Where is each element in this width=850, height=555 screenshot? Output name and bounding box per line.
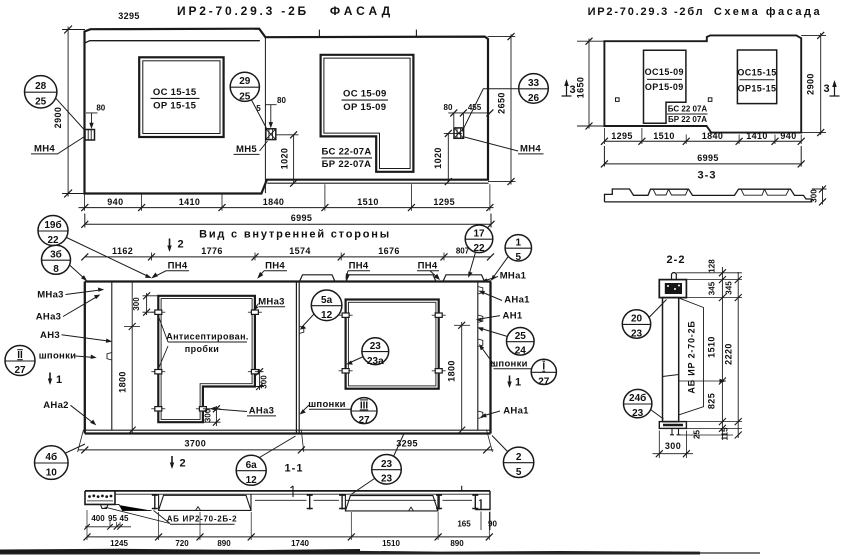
svg-text:25: 25 [693, 430, 702, 439]
svg-text:1020: 1020 [433, 147, 443, 169]
svg-text:27: 27 [358, 415, 370, 426]
svg-text:23: 23 [370, 341, 382, 352]
svg-text:890: 890 [217, 539, 231, 548]
svg-text:3: 3 [823, 83, 830, 95]
svg-text:2900: 2900 [53, 107, 63, 129]
svg-text:890: 890 [450, 539, 464, 548]
svg-text:1295: 1295 [433, 197, 455, 207]
svg-text:12: 12 [321, 310, 333, 321]
svg-text:МНа3: МНа3 [258, 297, 285, 308]
svg-text:23: 23 [381, 474, 393, 485]
svg-text:III: III [360, 400, 369, 411]
svg-text:АН3: АН3 [40, 330, 60, 341]
svg-text:БР 22 07А: БР 22 07А [668, 115, 707, 124]
svg-text:шпонки: шпонки [490, 358, 528, 369]
svg-text:8: 8 [53, 264, 59, 275]
svg-text:1510: 1510 [382, 539, 400, 548]
svg-text:29: 29 [239, 76, 251, 87]
svg-text:24: 24 [515, 346, 527, 357]
svg-text:300: 300 [665, 441, 681, 451]
svg-text:28: 28 [35, 81, 47, 92]
svg-text:22: 22 [47, 235, 59, 246]
svg-text:19б: 19б [44, 219, 61, 231]
svg-text:1020: 1020 [280, 148, 290, 170]
svg-text:ОС 15-15: ОС 15-15 [153, 87, 197, 98]
svg-text:ПН4: ПН4 [349, 260, 369, 271]
svg-text:25: 25 [515, 331, 527, 342]
svg-text:5: 5 [516, 467, 522, 478]
svg-text:1776: 1776 [201, 246, 223, 256]
svg-text:17: 17 [473, 228, 485, 239]
svg-text:АНа1: АНа1 [504, 295, 530, 306]
svg-text:пробки: пробки [185, 344, 219, 354]
svg-text:345: 345 [708, 281, 717, 295]
svg-text:1510: 1510 [653, 131, 675, 141]
svg-text:1-1: 1-1 [285, 463, 304, 475]
svg-text:2650: 2650 [497, 92, 507, 114]
svg-text:БР 22-07А: БР 22-07А [322, 159, 372, 170]
svg-text:АН1: АН1 [503, 310, 523, 321]
svg-text:10: 10 [46, 468, 58, 479]
svg-text:2-2: 2-2 [667, 254, 686, 266]
svg-text:1676: 1676 [378, 246, 400, 256]
svg-text:720: 720 [175, 539, 189, 548]
svg-text:ПН4: ПН4 [265, 260, 285, 271]
svg-text:МНа3: МНа3 [37, 290, 64, 301]
svg-text:ОС15-09: ОС15-09 [645, 67, 684, 77]
svg-text:1840: 1840 [263, 197, 285, 207]
svg-text:23: 23 [632, 408, 644, 419]
svg-text:128: 128 [708, 259, 717, 273]
svg-text:5: 5 [516, 252, 522, 263]
svg-text:АБ ИР2-70-2Б-2: АБ ИР2-70-2Б-2 [167, 515, 238, 524]
svg-text:ОР15-09: ОР15-09 [645, 82, 684, 92]
svg-text:1162: 1162 [112, 246, 133, 256]
svg-text:АБ ИР 2-70-2Б: АБ ИР 2-70-2Б [687, 320, 697, 393]
svg-text:33: 33 [528, 78, 540, 89]
svg-text:4б: 4б [45, 451, 57, 463]
svg-text:1574: 1574 [289, 246, 311, 256]
svg-text:825: 825 [707, 393, 717, 409]
svg-text:1800: 1800 [447, 360, 457, 382]
svg-text:2: 2 [180, 458, 187, 470]
svg-text:ОР 15-15: ОР 15-15 [153, 101, 196, 112]
svg-text:2220: 2220 [724, 343, 734, 365]
svg-text:1410: 1410 [179, 197, 201, 207]
svg-text:300: 300 [260, 375, 269, 389]
svg-text:27: 27 [538, 376, 550, 387]
svg-text:1410: 1410 [746, 131, 768, 141]
svg-text:3-3: 3-3 [698, 170, 717, 182]
svg-text:22: 22 [473, 243, 485, 254]
svg-text:3б: 3б [50, 248, 62, 260]
svg-text:3700: 3700 [184, 439, 206, 449]
svg-text:1800: 1800 [118, 371, 128, 393]
svg-text:5а: 5а [321, 295, 333, 306]
svg-text:АНа1: АНа1 [503, 406, 529, 417]
svg-text:ОР15-15: ОР15-15 [738, 84, 777, 94]
svg-text:2900: 2900 [806, 73, 816, 95]
svg-text:23а: 23а [367, 356, 384, 367]
svg-text:МНа1: МНа1 [500, 271, 527, 282]
svg-text:6995: 6995 [291, 213, 313, 223]
svg-text:ПН4: ПН4 [168, 260, 188, 271]
svg-text:25: 25 [239, 91, 251, 102]
svg-text:80: 80 [444, 103, 453, 112]
svg-text:23: 23 [631, 328, 643, 339]
svg-text:24б: 24б [629, 392, 646, 404]
svg-text:3295: 3295 [118, 11, 140, 21]
svg-text:БС 22-07А: БС 22-07А [321, 147, 371, 158]
svg-text:ОС15-15: ОС15-15 [737, 67, 776, 77]
svg-text:МН4: МН4 [34, 144, 55, 155]
svg-text:25: 25 [35, 96, 47, 107]
svg-text:1: 1 [516, 237, 522, 248]
svg-text:1295: 1295 [611, 131, 633, 141]
svg-text:80: 80 [96, 104, 105, 113]
svg-text:6а: 6а [246, 460, 258, 471]
svg-text:300: 300 [204, 408, 213, 422]
svg-text:20: 20 [631, 314, 643, 325]
svg-text:ПН4: ПН4 [418, 260, 438, 271]
svg-text:ОР 15-09: ОР 15-09 [343, 102, 386, 113]
svg-text:1: 1 [515, 377, 522, 389]
svg-text:МН5: МН5 [236, 144, 257, 155]
svg-text:940: 940 [107, 197, 123, 207]
svg-text:300: 300 [132, 297, 141, 311]
svg-text:2: 2 [516, 452, 522, 463]
svg-text:80: 80 [277, 96, 286, 105]
svg-text:400: 400 [91, 514, 105, 523]
svg-text:95: 95 [108, 514, 117, 523]
svg-text:АНа3: АНа3 [36, 312, 62, 323]
svg-text:шпонки: шпонки [39, 350, 77, 361]
svg-text:345: 345 [725, 281, 734, 295]
svg-text:МН4: МН4 [520, 144, 541, 155]
svg-text:ИР2-70.29.3 -2бл: ИР2-70.29.3 -2бл [588, 6, 705, 18]
svg-text:2: 2 [178, 239, 185, 251]
svg-text:6995: 6995 [697, 153, 719, 163]
svg-text:1: 1 [56, 374, 63, 386]
svg-text:5: 5 [256, 104, 261, 113]
svg-text:1245: 1245 [110, 539, 128, 548]
svg-text:23: 23 [381, 459, 393, 470]
svg-text:Схема фасада: Схема фасада [714, 6, 822, 18]
svg-text:АНа3: АНа3 [249, 406, 275, 417]
svg-text:1510: 1510 [357, 197, 379, 207]
svg-text:шпонки: шпонки [308, 399, 346, 410]
svg-text:Антисептирован.: Антисептирован. [166, 332, 249, 342]
svg-text:БС 22 07А: БС 22 07А [668, 105, 708, 114]
svg-text:26: 26 [528, 93, 540, 104]
svg-text:ФАСАД: ФАСАД [330, 4, 394, 18]
svg-text:12: 12 [246, 475, 258, 486]
svg-text:1740: 1740 [291, 539, 309, 548]
svg-text:1650: 1650 [576, 77, 586, 99]
svg-text:II: II [17, 350, 23, 361]
svg-text:I: I [542, 362, 545, 373]
svg-text:АНа2: АНа2 [43, 400, 69, 411]
svg-text:3: 3 [569, 84, 576, 96]
svg-text:1510: 1510 [707, 336, 717, 358]
svg-text:ОС 15-09: ОС 15-09 [343, 89, 387, 100]
svg-text:165: 165 [457, 520, 471, 529]
svg-text:940: 940 [780, 131, 796, 141]
svg-text:27: 27 [14, 365, 26, 376]
svg-text:Вид с внутренней стороны: Вид с внутренней стороны [199, 229, 391, 241]
svg-text:300: 300 [810, 189, 819, 203]
svg-text:115: 115 [721, 427, 730, 440]
svg-text:807: 807 [456, 247, 470, 256]
svg-text:1840: 1840 [702, 131, 724, 141]
svg-text:455: 455 [468, 103, 482, 112]
svg-text:ИР2-70.29.3 -2Б: ИР2-70.29.3 -2Б [177, 4, 309, 18]
svg-text:45: 45 [120, 514, 129, 523]
